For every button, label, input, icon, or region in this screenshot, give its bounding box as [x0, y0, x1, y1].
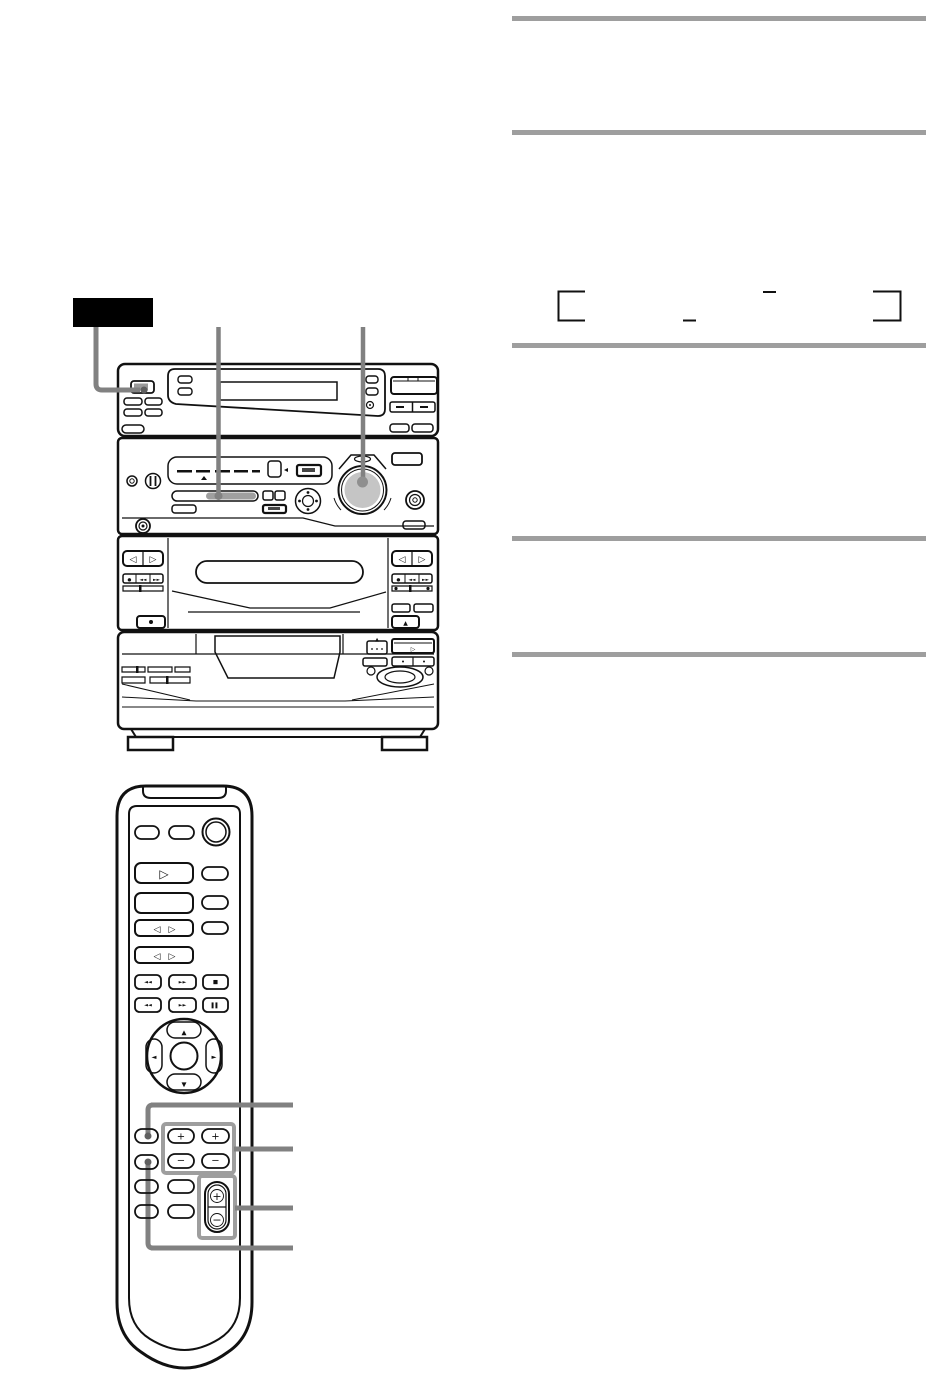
dir-left-icon: ◁ [154, 925, 161, 935]
deck-button-2 [145, 398, 162, 405]
tape-dir-left-icon: ◁ [130, 555, 137, 565]
direction-button-1: ◁ ▷ [135, 920, 193, 936]
nav-right-icon: ► [212, 1053, 217, 1061]
amp-right-button [392, 453, 422, 465]
section-rule-1 [512, 16, 926, 21]
disc-change-button: ▲ [367, 637, 387, 654]
balance-knob [406, 491, 424, 509]
prev-icon: ◄◄ [144, 980, 152, 986]
plus-icon: + [177, 1132, 185, 1143]
marker-triangle [201, 476, 207, 480]
tape-dir-right-icon: ▷ [419, 555, 426, 565]
rec-icon: ● [128, 578, 132, 583]
ffwd-icon: ►► [422, 578, 429, 583]
nav-up-icon: ▲ [182, 1029, 187, 1037]
main-unit-figure: ◁ ▷ ● ◄◄ ►► ◁ ▷ [60, 290, 455, 755]
vol-plus-icon: + [212, 1190, 221, 1203]
rewind-icon: ◄◄ [144, 1003, 152, 1009]
phones-jack [136, 519, 150, 533]
amplifier-controls [122, 453, 434, 533]
cd-bevel-lines [122, 684, 434, 700]
deck-a-slider [123, 585, 163, 592]
top-right-button-1 [390, 424, 409, 432]
side-button-2 [202, 896, 228, 909]
deck-button-1 [124, 398, 142, 405]
cassette-deck-controls: ◁ ▷ ● ◄◄ ►► ◁ ▷ [123, 538, 433, 628]
dark-key-1 [297, 465, 321, 476]
ffwd-icon: ►► [153, 578, 160, 583]
tuning-plus-button-2: + [202, 1129, 229, 1143]
deck-a-transport-row: ● ◄◄ ►► [123, 574, 163, 583]
highlight-box-preset [163, 1124, 234, 1173]
tuning-plus-button-1: + [168, 1129, 194, 1143]
callout-knob-end [357, 477, 368, 488]
stop-icon: ■ [213, 980, 218, 986]
plus-icon: + [211, 1132, 219, 1143]
section-rule-5 [512, 652, 926, 657]
top-right-slider [390, 402, 435, 412]
vol-minus-icon: − [212, 1214, 221, 1227]
cd-play-button: ▷ [392, 639, 434, 653]
amp-bottom-right-button [403, 521, 425, 529]
rec-icon: ● [397, 578, 401, 583]
foot-right [382, 737, 427, 750]
transport-row-2: ◄◄ ►► ▌▌ [135, 998, 228, 1012]
disc-skip-icon: ▲ [375, 637, 379, 643]
power-button [203, 819, 230, 846]
dir-right-icon: ▷ [169, 925, 176, 935]
cd-small-button-1 [363, 658, 387, 666]
dir-left-icon: ◁ [154, 952, 161, 962]
direction-button-2: ◁ ▷ [135, 947, 193, 963]
deck-button-4 [145, 409, 162, 416]
small-oval-button-4 [168, 1205, 194, 1218]
small-key-2 [275, 491, 285, 500]
foot-left [128, 737, 173, 750]
dir-right-icon: ▷ [169, 952, 176, 962]
nav-left-icon: ◄ [152, 1053, 157, 1061]
preset-plus-minus-group: + + − − [163, 1124, 234, 1173]
band-button [268, 461, 281, 477]
top-right-button-2 [412, 424, 433, 432]
nav-pad: ▲ ▼ ◄ ► [146, 1019, 222, 1093]
mic-jack-hole [130, 479, 134, 483]
callout-1-elbow [148, 1105, 153, 1136]
section-rule-3 [512, 343, 926, 348]
function-button-2 [169, 826, 194, 839]
tuning-minus-button-2: − [202, 1154, 229, 1168]
side-button-1 [202, 867, 228, 880]
manual-page: ◁ ▷ ● ◄◄ ►► ◁ ▷ [0, 0, 950, 1393]
deck-b-direction-button: ◁ ▷ [392, 551, 432, 566]
display-bezel [168, 369, 385, 416]
function-button-1 [135, 826, 159, 839]
deck-a-direction-button: ◁ ▷ [123, 551, 163, 566]
deck-b-small-button-2 [414, 604, 433, 612]
cd-tray-columns [196, 634, 343, 654]
transport-row-1: ◄◄ ►► ■ [135, 975, 228, 989]
tuning-minus-button-1: − [168, 1154, 194, 1168]
strip-sub-button [172, 505, 196, 513]
play-icon: ▷ [159, 867, 169, 881]
nav-center-button [171, 1043, 198, 1070]
volume-rocker-group: + − [199, 1176, 235, 1238]
small-oval-button-2 [168, 1180, 194, 1193]
deck-b-small-button-1 [392, 604, 410, 612]
dark-key-2 [263, 505, 286, 513]
small-key-1 [263, 491, 273, 500]
remote-figure: ▷ ◁ ▷ ◁ ▷ ◄◄ ►► ■ ◄◄ ►► [110, 780, 300, 1375]
display-frame-right-bracket [873, 292, 901, 321]
section-rule-4 [512, 536, 926, 541]
bezel-button-1 [178, 376, 192, 383]
nav-down-icon: ▼ [182, 1081, 187, 1089]
top-right-door-button [391, 377, 437, 394]
next-icon: ►► [179, 980, 187, 986]
pause-icon: ▌▌ [211, 1002, 220, 1009]
cd-level-sliders [122, 666, 190, 684]
remote-inner-panel [129, 806, 240, 1350]
cd-jog-dial [367, 667, 433, 687]
play-button: ▷ [135, 863, 193, 883]
cd-play-icon: ▷ [411, 646, 416, 653]
cassette-door-a [196, 561, 363, 583]
display-frame-left-bracket [559, 292, 586, 321]
mic-jack [127, 476, 137, 486]
jog-pad [296, 489, 321, 514]
eject-icon: ▲ [403, 620, 408, 627]
eject-button: ▲ [392, 616, 419, 628]
sensor-dot-center [369, 404, 371, 406]
cd-tray-slot [122, 697, 434, 707]
small-arrow-icon [284, 468, 288, 472]
blank-button [135, 893, 193, 913]
section-rule-2 [512, 130, 926, 135]
amplifier-section [118, 438, 438, 534]
remote-top-notch [143, 787, 226, 798]
amp-bezel-line [122, 518, 434, 526]
record-button [137, 616, 165, 628]
rew-icon: ◄◄ [409, 578, 416, 583]
deck-button-5 [122, 425, 144, 433]
tape-dir-right-icon: ▷ [150, 555, 157, 565]
deck-button-3 [124, 409, 142, 416]
deck-b-transport-row: ● ◄◄ ►► [392, 574, 432, 583]
display-frame-figure [550, 285, 910, 327]
input-selector [146, 474, 161, 489]
callout-power-end [141, 387, 148, 394]
minus-icon: − [177, 1156, 185, 1167]
ffwd-icon: ►► [179, 1003, 187, 1009]
display-window [220, 382, 337, 400]
side-button-3 [202, 922, 228, 934]
deck-b-slider [392, 585, 432, 592]
minus-icon: − [211, 1156, 219, 1167]
remote-body [117, 786, 252, 1368]
cassette-door-b-top [172, 591, 386, 608]
callout-function-end [215, 492, 223, 500]
bezel-button-2 [178, 388, 192, 395]
cd-tray [215, 636, 340, 678]
bezel-button-4 [366, 388, 378, 395]
rew-icon: ◄◄ [140, 578, 147, 583]
display-deck-controls [122, 369, 437, 433]
cd-small-button-2 [392, 657, 434, 666]
bezel-button-3 [366, 376, 378, 383]
cd-controls: ▲ ▷ [122, 634, 434, 707]
tape-dir-left-icon: ◁ [399, 555, 406, 565]
